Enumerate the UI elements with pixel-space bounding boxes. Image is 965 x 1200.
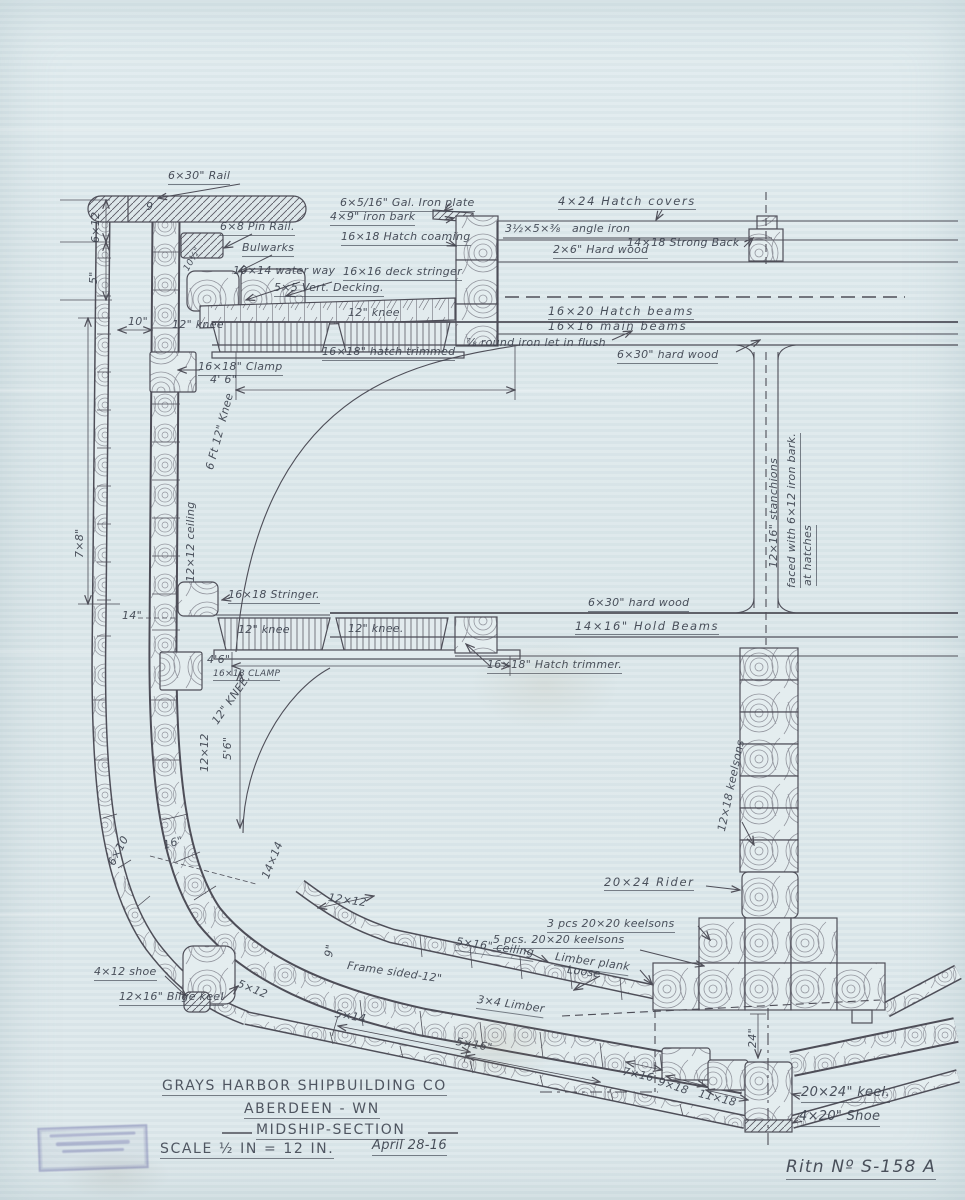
label-dim-12x12-bilge: 12×12 bbox=[327, 892, 367, 910]
label-deck-stringer: 16×16 deck stringer bbox=[343, 266, 462, 281]
label-bulwarks: Bulwarks bbox=[242, 242, 294, 257]
label-dim-14: 14" bbox=[122, 610, 142, 623]
label-dim-5: 5" bbox=[88, 271, 101, 284]
label-at-hatches: at hatches bbox=[802, 525, 817, 586]
label-keel-shoe: 4×20" Shoe bbox=[799, 1110, 880, 1127]
label-dim-7x8: 7×8" bbox=[74, 529, 87, 558]
label-dim-4ft6-upper: 4' 6" bbox=[210, 374, 237, 387]
label-location: ABERDEEN - WN bbox=[244, 1101, 380, 1119]
label-dim-5x12: 5×12 bbox=[235, 978, 269, 1001]
label-stanchions: 12×16" stanchions bbox=[768, 458, 781, 568]
label-round-iron: ⅞ round iron let in flush bbox=[466, 337, 606, 350]
label-knee-hold-stbd: 12" knee. bbox=[348, 623, 404, 636]
label-frame-sided: Frame sided-12" bbox=[346, 960, 442, 986]
label-waterway: 10×14 water way bbox=[233, 265, 335, 278]
label-main-beams: 16×16 main beams bbox=[548, 320, 687, 333]
label-dim-10: 10" bbox=[128, 316, 148, 329]
label-drawing-number: Ritn Nº S-158 A bbox=[786, 1158, 936, 1180]
label-dim-5ft6: 5'6" bbox=[222, 737, 235, 760]
label-scale: SCALE ½ IN = 12 IN. bbox=[160, 1141, 334, 1159]
label-rider: 20×24 Rider bbox=[604, 876, 694, 891]
label-dim-14x14: 14×14 bbox=[260, 840, 286, 881]
label-hard-wood-6x30-mid: 6×30" hard wood bbox=[588, 597, 689, 612]
label-stanchion-facing: faced with 6×12 iron bark. bbox=[786, 433, 801, 588]
label-knee-6ft: 6 Ft 12" Knee bbox=[204, 392, 237, 471]
label-vert-decking: 5×5 Vert. Decking. bbox=[274, 282, 384, 297]
label-iron-bark: 4×9" iron bark bbox=[330, 211, 415, 226]
label-dim-5x16: 5×16" bbox=[455, 1036, 493, 1055]
annotation-layer: 6×30" Rail96×8 Pin Rail.Bulwarks10×14 wa… bbox=[0, 0, 965, 1200]
label-hatch-coaming: 16×18 Hatch coaming bbox=[341, 231, 471, 246]
label-dim-5x14: 5×14 bbox=[334, 1008, 367, 1026]
label-knee-deck-port: 12" knee bbox=[172, 319, 224, 332]
label-keelsons-12x18: 12×18 keelsons bbox=[716, 739, 748, 833]
label-rail-mark: 9 bbox=[146, 201, 153, 214]
label-dim-6x10: 6×10 bbox=[106, 834, 132, 868]
label-knee-deck-stbd: 12" knee bbox=[348, 307, 400, 320]
label-limber-plank-loose: Loose bbox=[566, 964, 601, 981]
label-dim-24: 24" bbox=[747, 1028, 760, 1048]
label-dim-9: 9" bbox=[323, 944, 338, 959]
label-stringer: 16×18 Stringer. bbox=[228, 589, 320, 604]
label-knee-hold-port: 12" knee bbox=[238, 624, 290, 637]
blueprint-page: 6×30" Rail96×8 Pin Rail.Bulwarks10×14 wa… bbox=[0, 0, 965, 1200]
label-angle-iron: 3½×5×⅜ angle iron bbox=[505, 223, 630, 236]
label-hold-beams: 14×16" Hold Beams bbox=[575, 620, 719, 635]
label-bilge-keel: 12×16" Bilge keel bbox=[119, 991, 224, 1006]
label-dim-10half: 10½" bbox=[182, 246, 204, 273]
label-hatch-beams: 16×20 Hatch beams bbox=[548, 305, 694, 320]
label-pin-rail: 6×8 Pin Rail. bbox=[220, 221, 295, 236]
label-hard-wood-6x30-top: 6×30" hard wood bbox=[617, 349, 718, 364]
label-dim-6x12: 6×12 bbox=[90, 212, 103, 243]
label-dim-12x12-side: 12×12 bbox=[199, 733, 212, 772]
label-strong-back: 14×18 Strong Back bbox=[627, 237, 740, 250]
label-date: April 28-16 bbox=[372, 1139, 447, 1156]
label-keel: 20×24" keel. bbox=[801, 1086, 890, 1103]
label-dim-9x18: 9×18 bbox=[656, 1076, 690, 1098]
label-limber-3x4: 3×4 Limber bbox=[476, 994, 545, 1018]
label-dim-16: 16" bbox=[162, 835, 185, 852]
label-rail: 6×30" Rail bbox=[168, 170, 230, 185]
label-ceiling-12x12: 12×12 ceiling bbox=[185, 501, 198, 582]
label-keelsons-3pcs: 3 pcs 20×20 keelsons bbox=[547, 918, 675, 933]
archive-stamp bbox=[37, 1124, 148, 1172]
label-hatch-trimmed: 16×18" hatch trimmed bbox=[322, 346, 455, 361]
label-dim-4ft6-lower: 4'6" bbox=[207, 654, 230, 667]
label-dim-11x18: 11×18 bbox=[697, 1088, 738, 1110]
label-company: GRAYS HARBOR SHIPBUILDING CO bbox=[162, 1078, 447, 1096]
label-hatch-covers: 4×24 Hatch covers bbox=[558, 195, 696, 210]
label-hatch-trimmer: 16×18" Hatch trimmer. bbox=[487, 659, 622, 674]
label-dim-7x16: 7×16 bbox=[621, 1066, 654, 1085]
label-shoe-4x12: 4×12 shoe bbox=[94, 966, 157, 981]
